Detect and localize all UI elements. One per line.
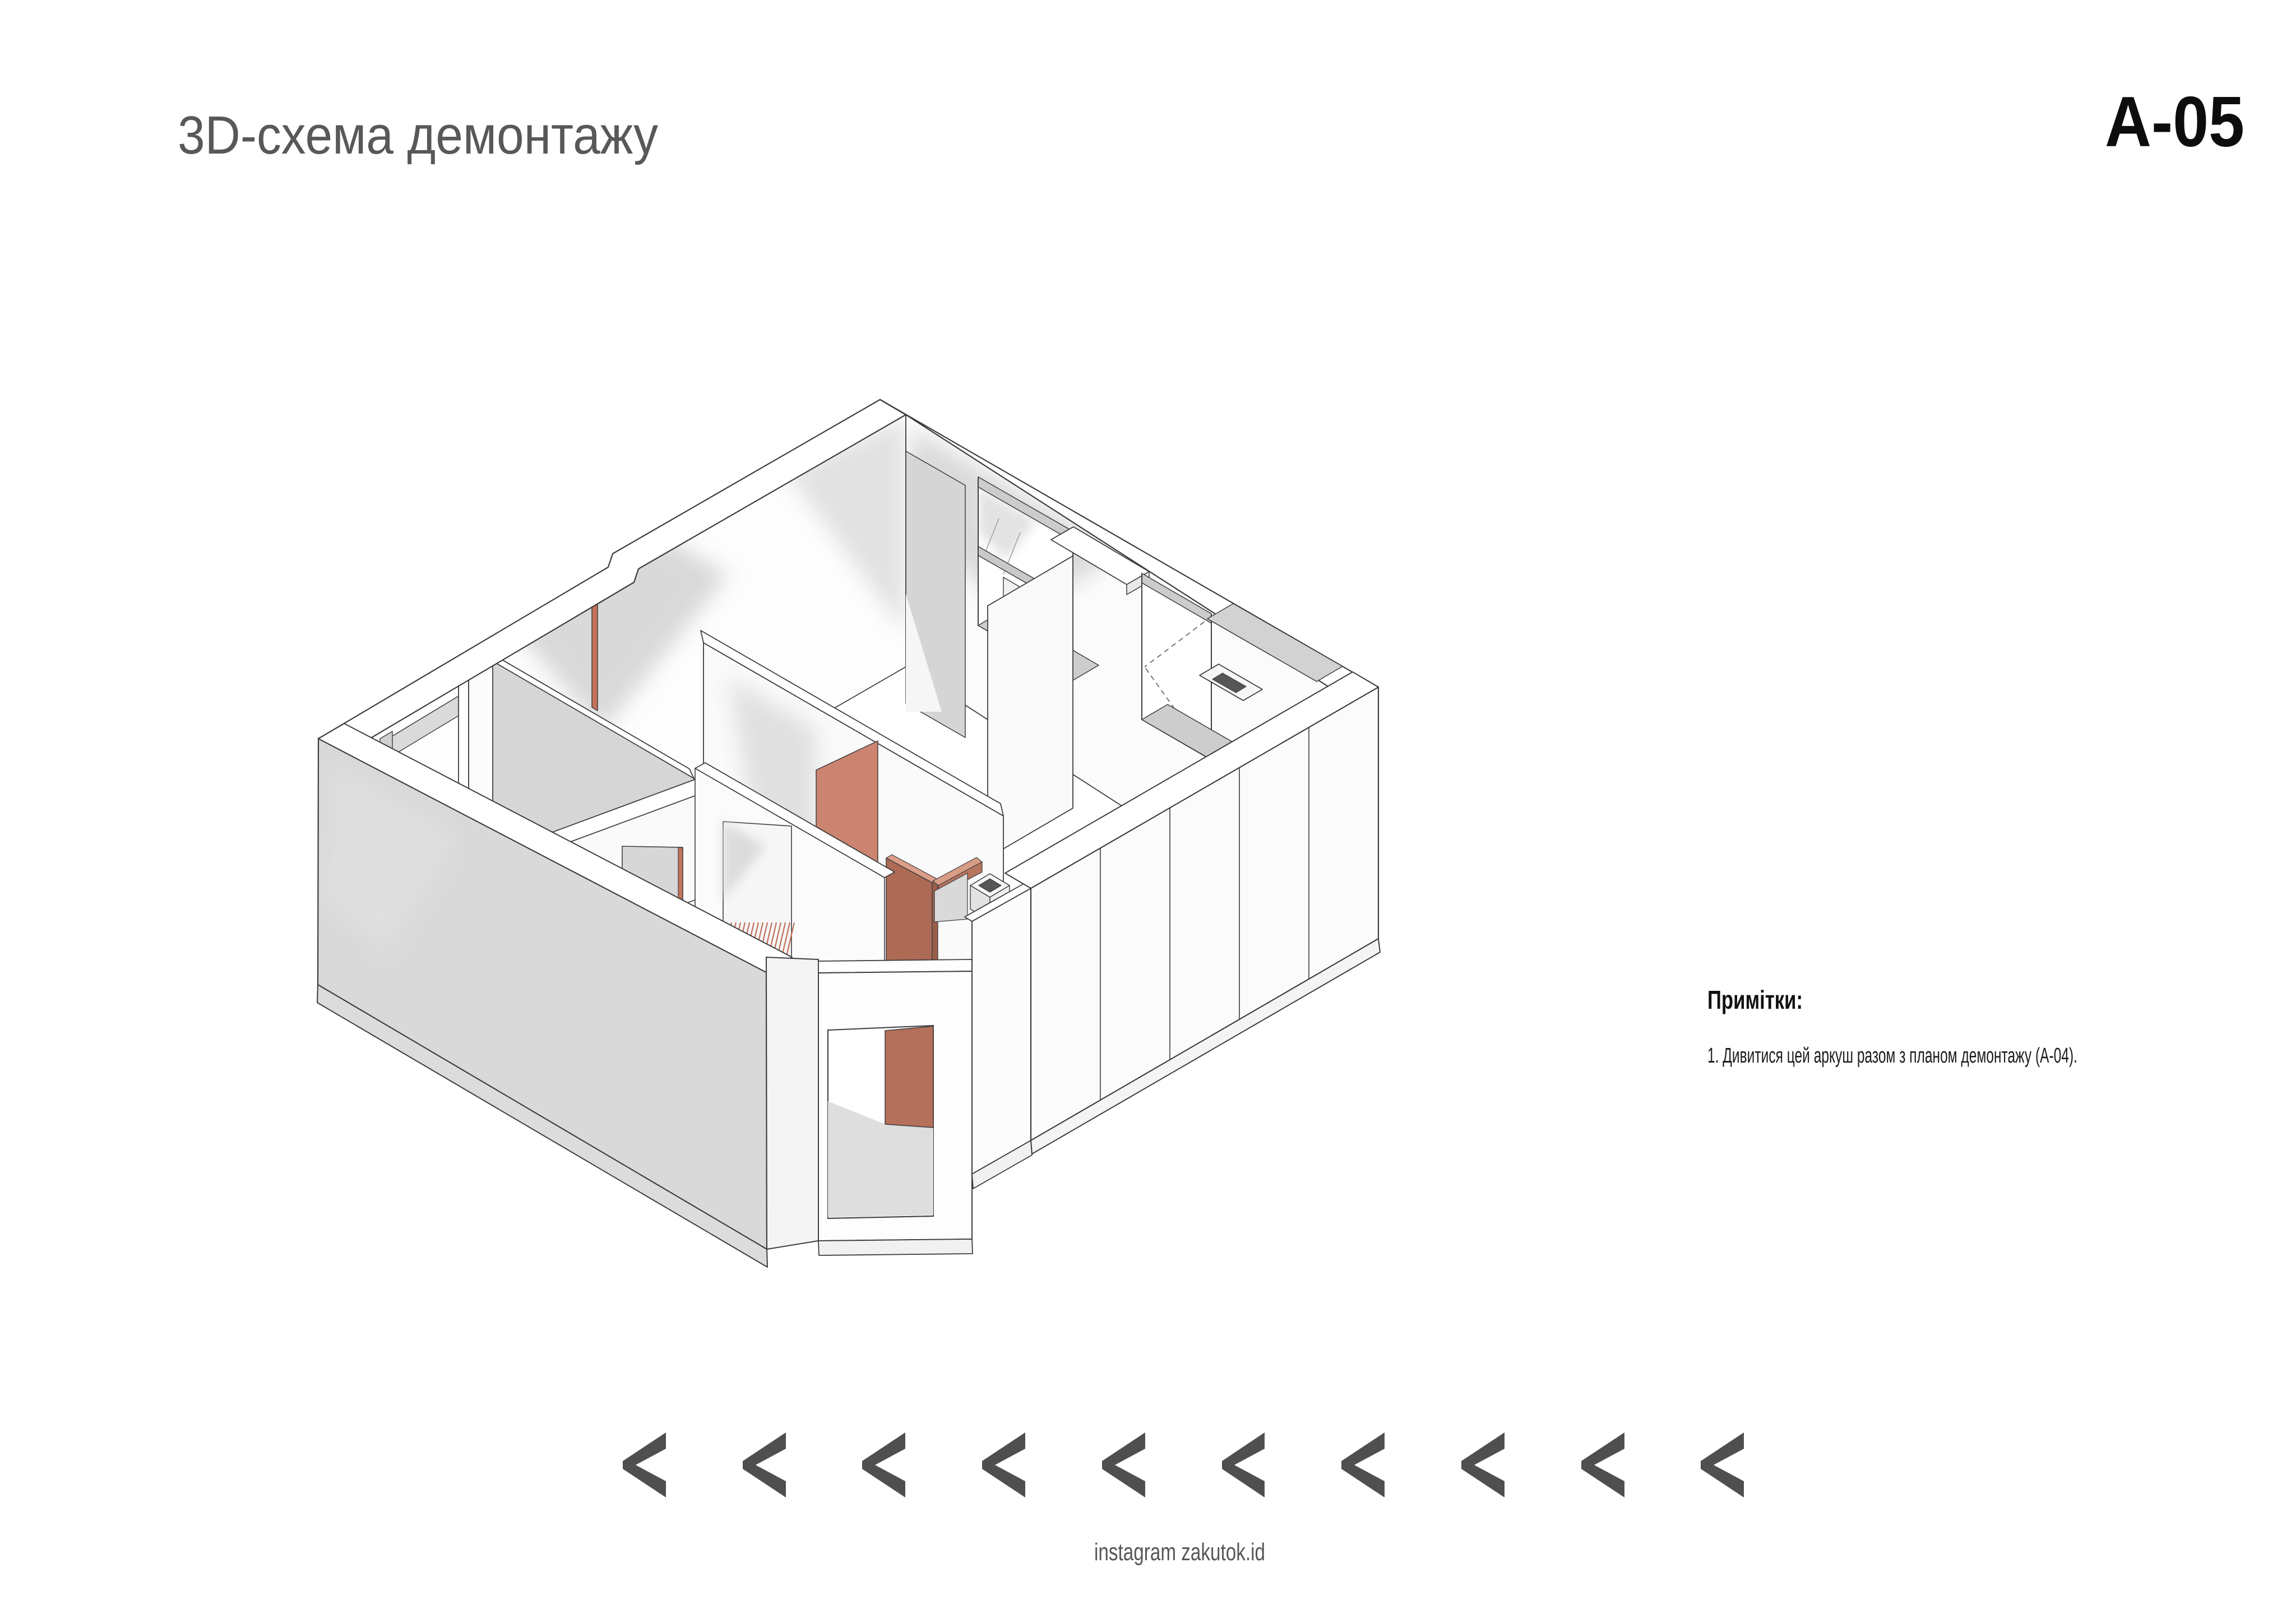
svg-text:3D-схема демонтажу: 3D-схема демонтажу <box>178 105 658 165</box>
svg-text:1. Дивитися цей аркуш разом з: 1. Дивитися цей аркуш разом з планом дем… <box>1707 1044 2077 1068</box>
svg-text:instagram zakutok.id: instagram zakutok.id <box>1094 1538 1265 1566</box>
svg-text:А-05: А-05 <box>2105 82 2244 161</box>
svg-text:Примітки:: Примітки: <box>1707 985 1803 1014</box>
